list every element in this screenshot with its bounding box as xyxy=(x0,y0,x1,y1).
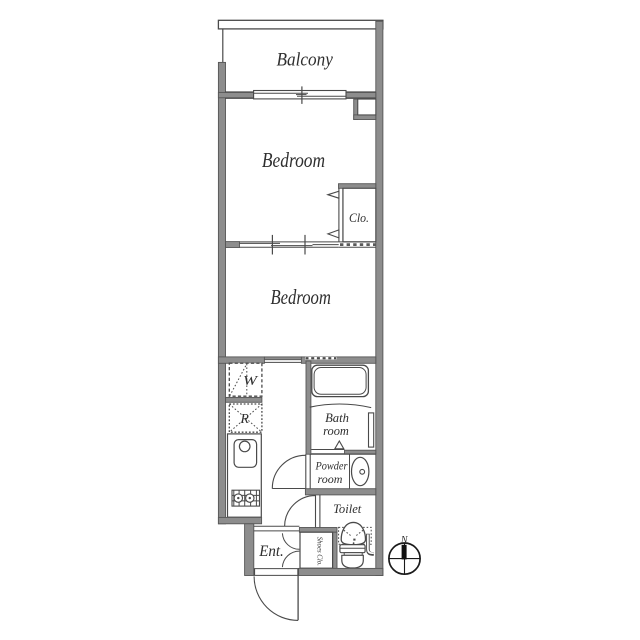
svg-text:room: room xyxy=(323,424,349,438)
svg-text:Powder: Powder xyxy=(315,459,348,473)
svg-text:Ent.: Ent. xyxy=(258,543,284,560)
svg-text:Toilet: Toilet xyxy=(333,501,362,516)
svg-text:Shoes Clo.: Shoes Clo. xyxy=(315,537,322,566)
svg-text:Bedroom: Bedroom xyxy=(270,285,331,309)
svg-text:R: R xyxy=(240,411,250,426)
svg-text:Balcony: Balcony xyxy=(277,49,334,70)
svg-text:room: room xyxy=(318,472,343,486)
svg-text:N: N xyxy=(400,535,409,546)
svg-text:Bedroom: Bedroom xyxy=(262,148,325,172)
svg-text:Bath: Bath xyxy=(325,411,349,425)
svg-text:W: W xyxy=(243,373,259,388)
svg-text:Clo.: Clo. xyxy=(349,210,369,225)
